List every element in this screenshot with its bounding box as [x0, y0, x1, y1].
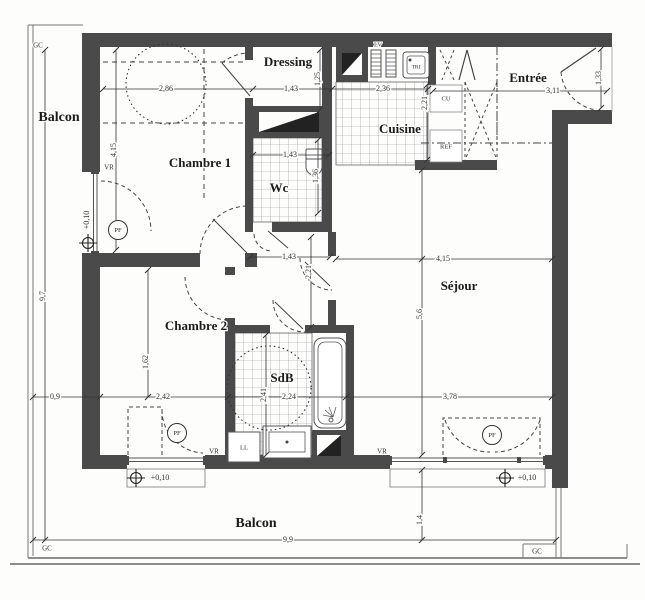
pf-label: PF: [173, 430, 181, 437]
level-label-bottom-right: +0,10: [518, 473, 537, 482]
dim-cuisine-depth: 2,21: [420, 96, 429, 110]
fixture-label-ll: LL: [240, 444, 248, 451]
fixture-label-ref: REF: [440, 143, 452, 150]
dim-hall-width: 1,43: [282, 252, 296, 261]
room-label-chambre2: Chambre 2: [165, 318, 227, 333]
dim-sdb-width: 2,24: [282, 392, 296, 401]
dim-balcon-left-width: 0,9: [50, 392, 60, 401]
room-label-chambre1: Chambre 1: [169, 155, 231, 170]
level-label-left: +0,10: [82, 211, 91, 230]
dim-dressing-depth: 1,25: [313, 72, 322, 86]
vr-label-sejour: VR: [377, 448, 387, 456]
dim-sejour-width: 4,15: [436, 254, 450, 263]
room-label-balcon-bottom: Balcon: [235, 516, 276, 531]
gc-label-bottom-right: GC: [532, 548, 542, 556]
dim-balcon-bottom-length: 9,9: [283, 535, 293, 544]
dim-sejour-depth: 5,6: [415, 309, 424, 319]
floor-plan-page: PF PF PF Balcon Dressing Chambre 1 Cuisi…: [0, 0, 645, 600]
dim-entree-depth: 1,33: [594, 71, 603, 85]
dim-chambre1-width: 2,86: [159, 84, 173, 93]
level-label-bottom-left: +0,10: [151, 473, 170, 482]
dim-wc-depth: 1,36: [311, 169, 320, 183]
dim-wc-width: 1,43: [283, 150, 297, 159]
room-label-dressing: Dressing: [264, 54, 313, 69]
dim-balcon-left-length: 9,7: [38, 291, 47, 301]
dim-chambre2-depth: 1,62: [141, 355, 150, 369]
room-label-sdb: SdB: [270, 370, 293, 385]
gc-label-top-left: GC: [33, 42, 43, 50]
dim-entree-width: 3,11: [546, 86, 560, 95]
floor-plan-drawing: PF PF PF Balcon Dressing Chambre 1 Cuisi…: [0, 0, 645, 600]
dim-chambre2-width: 2,42: [156, 392, 170, 401]
dim-chambre1-depth: 4,15: [109, 143, 118, 157]
dim-balcon-bottom-depth: 1,4: [415, 515, 424, 525]
fixture-label-lv: LV: [374, 41, 382, 48]
dim-sdb-depth: 2,41: [259, 388, 268, 402]
fixture-label-tri: TRI: [412, 64, 421, 70]
room-label-cuisine: Cuisine: [379, 121, 421, 136]
pf-label: PF: [488, 432, 496, 439]
dim-dressing-width: 1,43: [284, 84, 298, 93]
room-label-entree: Entrée: [509, 70, 547, 85]
room-label-sejour: Séjour: [441, 278, 478, 293]
dim-sejour-window-width: 3,78: [443, 392, 457, 401]
vr-label-chambre1: VR: [104, 164, 114, 172]
fixture-label-cu: CU: [441, 95, 450, 102]
dim-hall-depth: 2,21: [304, 265, 313, 279]
room-label-balcon-left: Balcon: [38, 110, 79, 125]
gc-label-bottom-left: GC: [42, 545, 52, 553]
room-label-wc: Wc: [270, 180, 289, 195]
pf-label: PF: [114, 227, 122, 234]
toilet: [306, 149, 322, 159]
vr-label-chambre2: VR: [209, 448, 219, 456]
dim-cuisine-width: 2,36: [376, 84, 390, 93]
